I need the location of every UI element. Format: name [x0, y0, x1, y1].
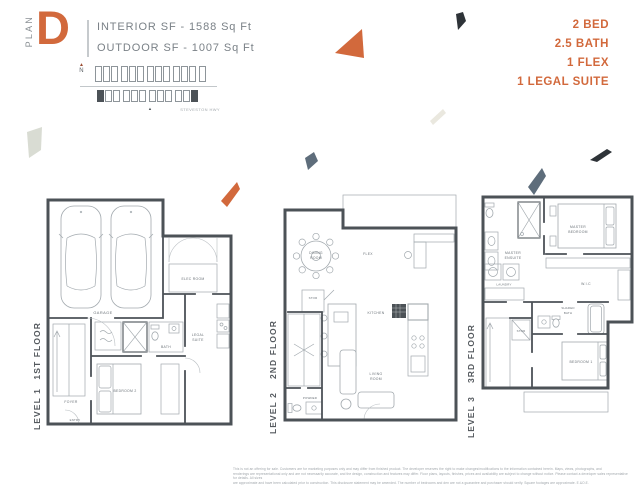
confetti-shard-beige: [430, 109, 446, 125]
room-label-ensuite: MASTER: [505, 251, 521, 255]
sitemap-unit: [131, 90, 138, 102]
header-divider: [87, 20, 89, 57]
plan-letter: D: [36, 4, 70, 51]
pantry-box: [392, 304, 406, 318]
room-label-living-2: ROOM: [370, 377, 382, 381]
room-label-elec: ELEC ROOM: [181, 277, 204, 281]
confetti-shard-slate-left: [305, 152, 318, 170]
car-icon: [109, 206, 153, 308]
outdoor-sf-text: OUTDOOR SF - 1007 Sq Ft: [97, 42, 255, 54]
sitemap-unit: [175, 90, 182, 102]
room-label-garage: GARAGE: [93, 310, 112, 315]
floor3-plan: MASTER ENSUITE MASTER BEDROOM W.I.C LAUN…: [466, 192, 638, 424]
room-label-bath: BATH: [161, 345, 171, 349]
car-icon: [59, 206, 103, 308]
sitemap-unit: [165, 90, 172, 102]
brochure-page: PLAN D INTERIOR SF - 1588 Sq Ft OUTDOOR …: [0, 0, 639, 494]
room-label-flex: FLEX: [363, 252, 373, 256]
floor1-plan: GARAGE ELEC ROOM BATH LEGAL SUITE: [45, 196, 235, 428]
room-label-master: MASTER: [570, 225, 586, 229]
sitemap-unit: [129, 66, 136, 82]
street-label: STEVESTON HWY: [180, 107, 220, 112]
confetti-shard-sage: [27, 127, 42, 158]
sitemap-unit: [147, 66, 154, 82]
confetti-shard-ink-top: [456, 12, 466, 30]
sitemap-unit: [139, 90, 146, 102]
sitemap-unit: [181, 66, 188, 82]
sitemap-unit: [189, 66, 196, 82]
room-label-wic: W.I.C: [581, 282, 591, 286]
floor1-title: 1ST FLOOR: [32, 322, 42, 380]
room-label-master-2: BEDROOM: [568, 230, 588, 234]
disclaimer-line: are approximate and have been calculated…: [233, 481, 632, 486]
room-label-living: LIVING: [370, 372, 383, 376]
feature-baths: 2.5 BATH: [517, 35, 609, 54]
sitemap-unit: [123, 90, 130, 102]
room-label-stor: STOR: [309, 296, 318, 300]
sitemap-unit: [137, 66, 144, 82]
deck-hatch: [524, 392, 608, 412]
confetti-shard-orange-top: [335, 29, 364, 58]
feature-legal-suite: 1 LEGAL SUITE: [517, 73, 609, 92]
sitemap-unit: [191, 90, 198, 102]
sitemap-unit: [163, 66, 170, 82]
sitemap-unit: [155, 66, 162, 82]
sitemap-unit: [149, 90, 156, 102]
room-label-dining-2: ROOM: [310, 256, 322, 260]
sitemap-row-top: [95, 66, 206, 82]
room-label-foyer: FOYER: [64, 400, 77, 404]
room-label-shared: SHARED: [561, 306, 574, 310]
room-label-dining: DINING: [309, 251, 323, 255]
sitemap-unit: [103, 66, 110, 82]
sitemap-unit: [173, 66, 180, 82]
sitemap-unit: [95, 66, 102, 82]
sitemap-row-bottom: [97, 90, 200, 102]
sitemap-entry-marker: ▲: [148, 107, 152, 111]
room-label-entry: ENTRY: [70, 418, 81, 422]
feature-flex: 1 FLEX: [517, 54, 609, 73]
interior-sf-text: INTERIOR SF - 1588 Sq Ft: [97, 21, 252, 33]
room-label-powder: POWDER: [303, 396, 317, 400]
sitemap-unit: [157, 90, 164, 102]
sitemap-unit: [183, 90, 190, 102]
disclaimer-line: renderings are representational only and…: [233, 472, 632, 481]
feature-list: 2 BED 2.5 BATH 1 FLEX 1 LEGAL SUITE: [517, 16, 609, 92]
room-label-laundry: LAUNDRY: [496, 283, 511, 287]
room-label-legal-suite-2: SUITE: [192, 338, 204, 342]
sitemap-unit: [111, 66, 118, 82]
confetti-shard-slate-right: [528, 168, 546, 195]
disclaimer: This is not an offering for sale. Custom…: [233, 467, 632, 485]
disclaimer-line: This is not an offering for sale. Custom…: [233, 467, 632, 472]
north-arrow-icon: ▲ N: [79, 62, 84, 74]
room-label-ensuite-2: ENSUITE: [505, 256, 522, 260]
room-label-legal-suite: LEGAL: [192, 333, 204, 337]
deck-hatch: [343, 195, 456, 228]
sitemap-unit: [105, 90, 112, 102]
site-map: ▲ N ▲ STEVESTON HWY: [78, 62, 220, 114]
floor2-plan: DINING ROOM FLEX STOR: [264, 192, 460, 430]
confetti-shard-ink-right: [590, 149, 612, 162]
room-label-stor3: STOR: [517, 329, 526, 333]
sitemap-unit: [199, 66, 206, 82]
plan-word: PLAN: [24, 15, 34, 47]
room-label-bedroom2: BEDROOM 2: [113, 389, 136, 393]
elevator-shaft: [123, 322, 147, 352]
sitemap-unit: [113, 90, 120, 102]
feature-beds: 2 BED: [517, 16, 609, 35]
sitemap-unit: [121, 66, 128, 82]
sitemap-road: [80, 86, 217, 87]
north-label: N: [79, 68, 83, 74]
room-label-bedroom1: BEDROOM 1: [569, 360, 592, 364]
floor1-level: LEVEL 1: [32, 388, 42, 430]
sitemap-unit: [97, 90, 104, 102]
room-label-shared-2: BATH: [564, 311, 572, 315]
room-label-kitchen: KITCHEN: [368, 311, 385, 315]
